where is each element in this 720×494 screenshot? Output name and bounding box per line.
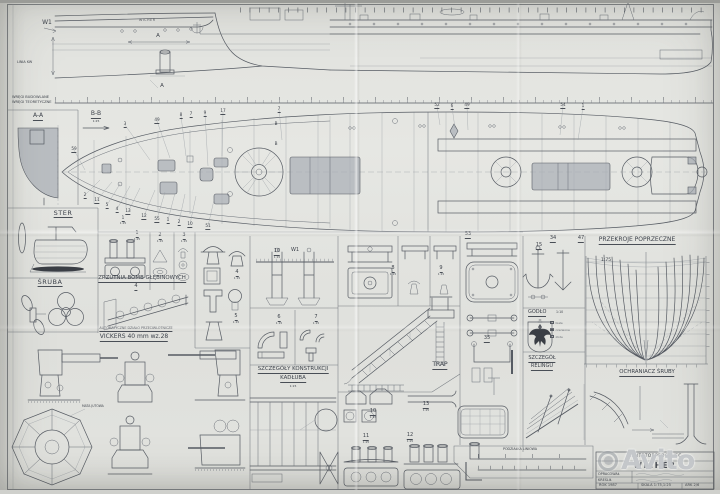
plan-callout-number: 4 <box>116 207 119 213</box>
section-aa-label: A-A <box>33 113 43 121</box>
plan-callout-number: 7 <box>278 107 281 113</box>
plan-callout-number: 59 <box>71 147 76 153</box>
linear-scale-label: PODZIAŁKA LINIOWA <box>503 448 537 451</box>
plan-callout-number: 2 <box>84 193 87 199</box>
vickers-gun-drawings <box>12 350 245 485</box>
vickers-gun-label: VICKERS 40 mm wz.28 <box>100 334 168 342</box>
hull-construction-label-2: KADŁUBA <box>280 376 306 383</box>
photo-edge-bottom <box>0 490 720 494</box>
detail-number: 15 <box>536 243 542 250</box>
detail-number: 61:15 <box>276 315 283 325</box>
plan-callout-number: 11 <box>94 198 99 204</box>
plan-callout-number: 10 <box>187 222 192 228</box>
watermark-text: Avito <box>621 445 694 476</box>
legend-label: złote <box>556 335 563 339</box>
scanned-plan-photo: W1 LINIA KW WRĘGI BUDOWLANE WRĘGI TEORET… <box>0 0 720 494</box>
legend-colour-swatch-icon <box>550 335 554 339</box>
avito-logo-dot-icon <box>598 451 618 471</box>
legend-label: białe <box>556 321 563 325</box>
emblem-colour-legend: białeczerwonezłote <box>550 319 570 340</box>
detail-number: 4 <box>134 284 137 291</box>
detail-number: 121:25 <box>407 433 414 443</box>
davit-detail-drawing <box>256 248 334 305</box>
hull-construction-scale: 1:15 <box>290 385 297 388</box>
emblem-label: GODŁO <box>528 310 546 317</box>
plan-callout-number: 51 <box>205 224 210 230</box>
railing-detail-label-2: RELINGU <box>531 364 553 371</box>
side-elevation-drawing <box>55 0 713 103</box>
title-scale: SKALA 1:75,1:25 <box>641 484 671 488</box>
photo-edge-top <box>0 0 720 3</box>
rudder-detail-drawing <box>19 223 88 272</box>
title-sheet-number: ARK 2/6 <box>685 484 699 488</box>
detail-number: 81:15 <box>390 266 397 276</box>
legend-row: białe <box>550 319 570 326</box>
detail-number: 91:15 <box>438 266 445 276</box>
body-plan-drawing <box>584 252 708 366</box>
plan-callout-number: B <box>275 142 278 146</box>
plan-callout-number: 2 <box>178 220 181 226</box>
detail-number: 34 <box>550 236 556 243</box>
plan-callout-number: 1 <box>582 104 585 110</box>
plan-callout-number: B <box>275 122 278 126</box>
plan-callout-number: 17 <box>220 109 225 115</box>
pipe-fittings-drawing <box>258 330 324 361</box>
plan-callout-number: 11:25 <box>120 216 127 225</box>
plan-callout-number: 5 <box>106 203 109 209</box>
hull-construction-drawing <box>250 398 338 484</box>
plan-callout-number: 52 <box>434 103 439 109</box>
plan-callout-number: 54 <box>560 103 565 109</box>
waterline-label: LINIA KW <box>17 61 32 64</box>
plan-callout-number: 55 <box>154 217 159 223</box>
hull-name-text: WICHER <box>139 19 156 22</box>
watermark: Avito <box>598 445 694 476</box>
title-year: ROK 1987 <box>599 484 617 488</box>
section-a-mark-aft: A <box>160 84 164 90</box>
legend-colour-swatch-icon <box>550 328 554 332</box>
detail-number: 101:15 <box>274 249 281 259</box>
propeller-guard-label: OCHRANIACZ ŚRUBY <box>619 370 674 377</box>
propeller-guard-drawing <box>584 384 706 444</box>
depth-charge-thrower-label: ZRZUTNIA BOMB GŁĘBINOWYCH <box>98 276 186 283</box>
detail-number: 71:15 <box>313 315 320 325</box>
railing-detail-label-1: SZCZEGÓŁ <box>528 356 555 363</box>
title-kresl-label: KREŚLIŁ <box>598 479 612 482</box>
skylight-details-drawing <box>348 243 518 302</box>
plan-callout-number: 12 <box>141 214 146 220</box>
ladder-label: TRAP <box>432 362 447 370</box>
plan-callout-number: 13 <box>125 209 130 215</box>
cross-sections-scale: 1:75 <box>601 259 611 264</box>
detail-number: 131:25 <box>423 402 430 412</box>
w1-view-label: W1 <box>42 20 52 26</box>
plan-callout-number: 3 <box>124 122 127 128</box>
section-bb-label: B-B <box>91 111 101 119</box>
detail-number: 51:15 <box>233 314 240 324</box>
ventilator-details-drawing <box>201 247 245 341</box>
plan-callout-number: 49 <box>464 103 469 109</box>
detail-number: W1 <box>291 248 299 253</box>
ladder-details-drawing <box>344 297 454 391</box>
section-bb-scale: 1:25 <box>93 120 100 123</box>
rudder-label: STER <box>54 210 73 218</box>
plan-callout-number: 49 <box>154 118 159 124</box>
detail-number: 21:15 <box>157 233 164 243</box>
aa-gun-subtitle: AUTOMATYCZNE DZIAŁO PRZECIWLOTNICZE <box>99 327 172 332</box>
plan-callout-number: 7 <box>190 112 193 118</box>
frames-theoretical-label: WRĘGI TEORETYCZNE <box>12 101 52 105</box>
plan-callout-number: 1 <box>167 218 170 224</box>
section-aa-drawing <box>18 125 58 205</box>
section-a-mark-fore: A <box>156 34 160 40</box>
deck-fittings-drawing <box>467 315 517 395</box>
plan-line-art <box>0 0 720 494</box>
detail-number: 47 <box>578 236 584 243</box>
hull-construction-label-1: SZCZEGÓŁY KONSTRUKCJI <box>258 367 329 374</box>
plan-callout-number: 8 <box>180 113 183 119</box>
detail-number: 31:15 <box>181 233 188 243</box>
railing-detail-drawing <box>526 388 578 438</box>
propeller-label: ŚRUBA <box>38 279 63 287</box>
linear-scale-drawing <box>478 456 586 470</box>
legend-label: czerwone <box>556 328 570 332</box>
propeller-detail-drawing <box>20 293 84 337</box>
plan-callout-number: 9 <box>204 111 207 117</box>
detail-number: 53 <box>465 232 471 239</box>
detail-number: 101:15 <box>370 409 377 419</box>
emblem-scale: 1:10 <box>556 311 563 314</box>
legend-colour-swatch-icon <box>550 321 554 325</box>
legend-row: czerwone <box>550 326 570 333</box>
sheet-frame <box>8 5 714 490</box>
jute-mat-label: MATA JUTOWA <box>82 405 104 408</box>
detail-number: 11:25 <box>134 231 141 241</box>
detail-number: 35 <box>484 336 490 343</box>
anchor-details-drawing <box>523 246 571 299</box>
detail-number: 111:25 <box>363 434 370 444</box>
emblem-drawing <box>528 320 552 352</box>
cross-sections-label: PRZEKROJE POPRZECZNE <box>599 237 676 245</box>
depth-charge-rack-drawing <box>104 240 189 331</box>
legend-row: złote <box>550 333 570 340</box>
detail-number: 41:15 <box>234 270 241 280</box>
deck-plan-drawing <box>62 106 710 232</box>
plan-callout-number: 6 <box>451 104 454 110</box>
